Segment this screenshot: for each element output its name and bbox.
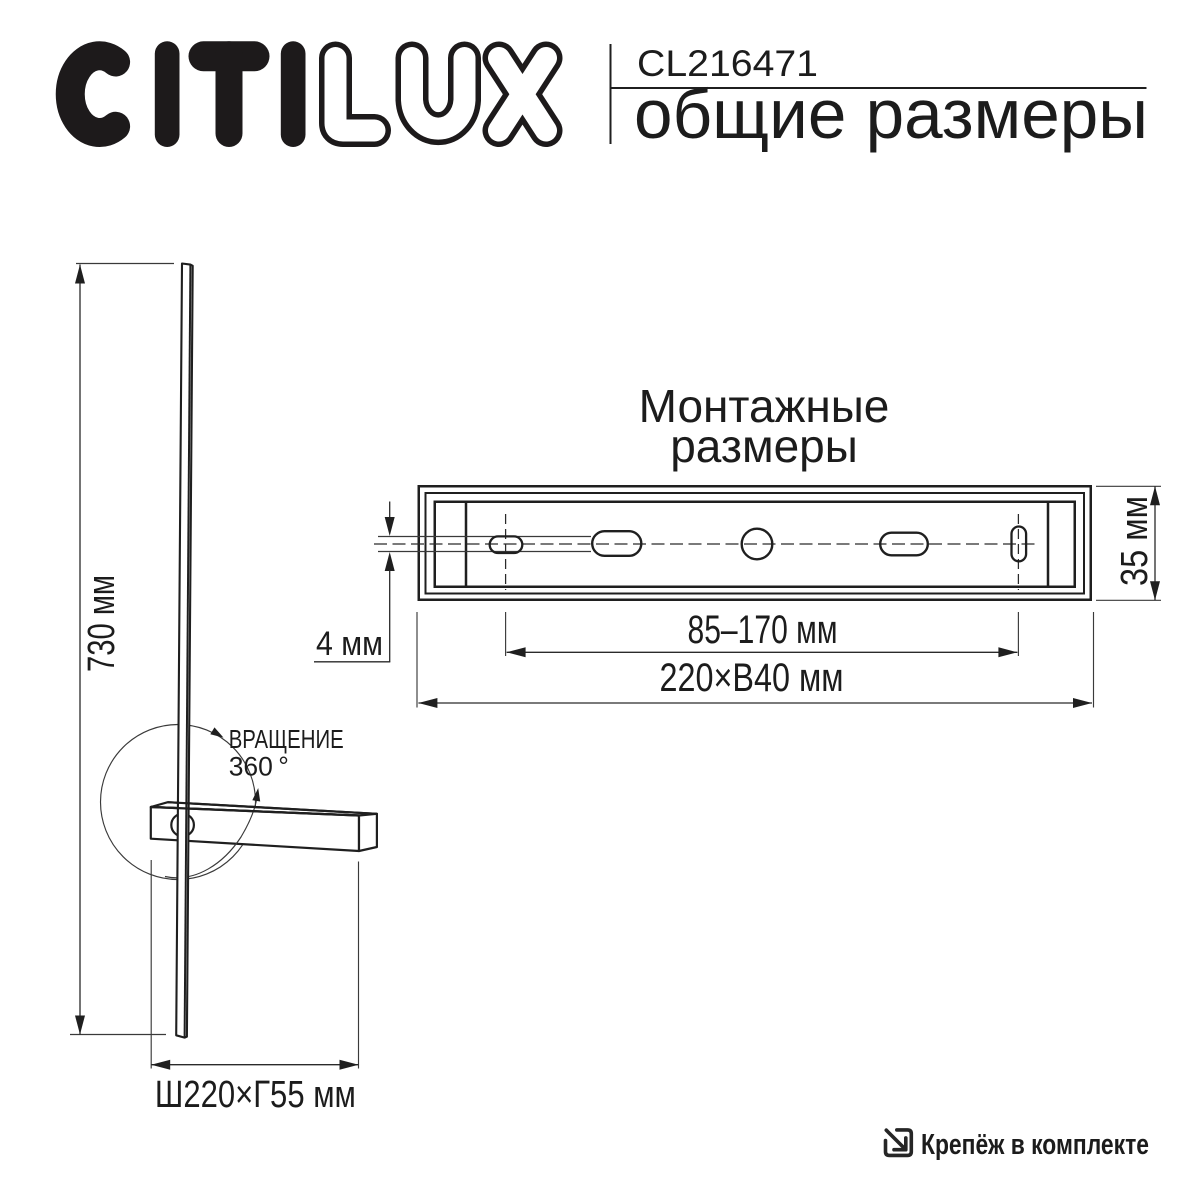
- svg-text:общие размеры: общие размеры: [634, 75, 1148, 153]
- svg-text:Ш220×Г55 мм: Ш220×Г55 мм: [155, 1074, 356, 1116]
- svg-text:ВРАЩЕНИЕ: ВРАЩЕНИЕ: [229, 726, 344, 754]
- svg-text:размеры: размеры: [670, 420, 858, 472]
- svg-text:220×В40 мм: 220×В40 мм: [660, 656, 844, 700]
- svg-text:35 мм: 35 мм: [1114, 496, 1156, 586]
- svg-text:85–170 мм: 85–170 мм: [688, 608, 838, 652]
- svg-text:4 мм: 4 мм: [316, 625, 383, 663]
- svg-text:Крепёж в комплекте: Крепёж в комплекте: [921, 1129, 1149, 1161]
- svg-text:730 мм: 730 мм: [81, 575, 123, 672]
- svg-text:360 °: 360 °: [229, 752, 289, 782]
